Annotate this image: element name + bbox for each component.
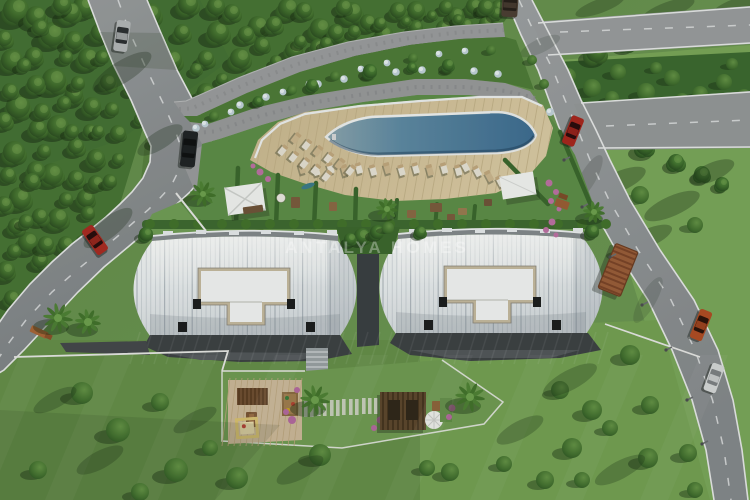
svg-text:ANTALYA HOMES: ANTALYA HOMES bbox=[285, 238, 469, 257]
